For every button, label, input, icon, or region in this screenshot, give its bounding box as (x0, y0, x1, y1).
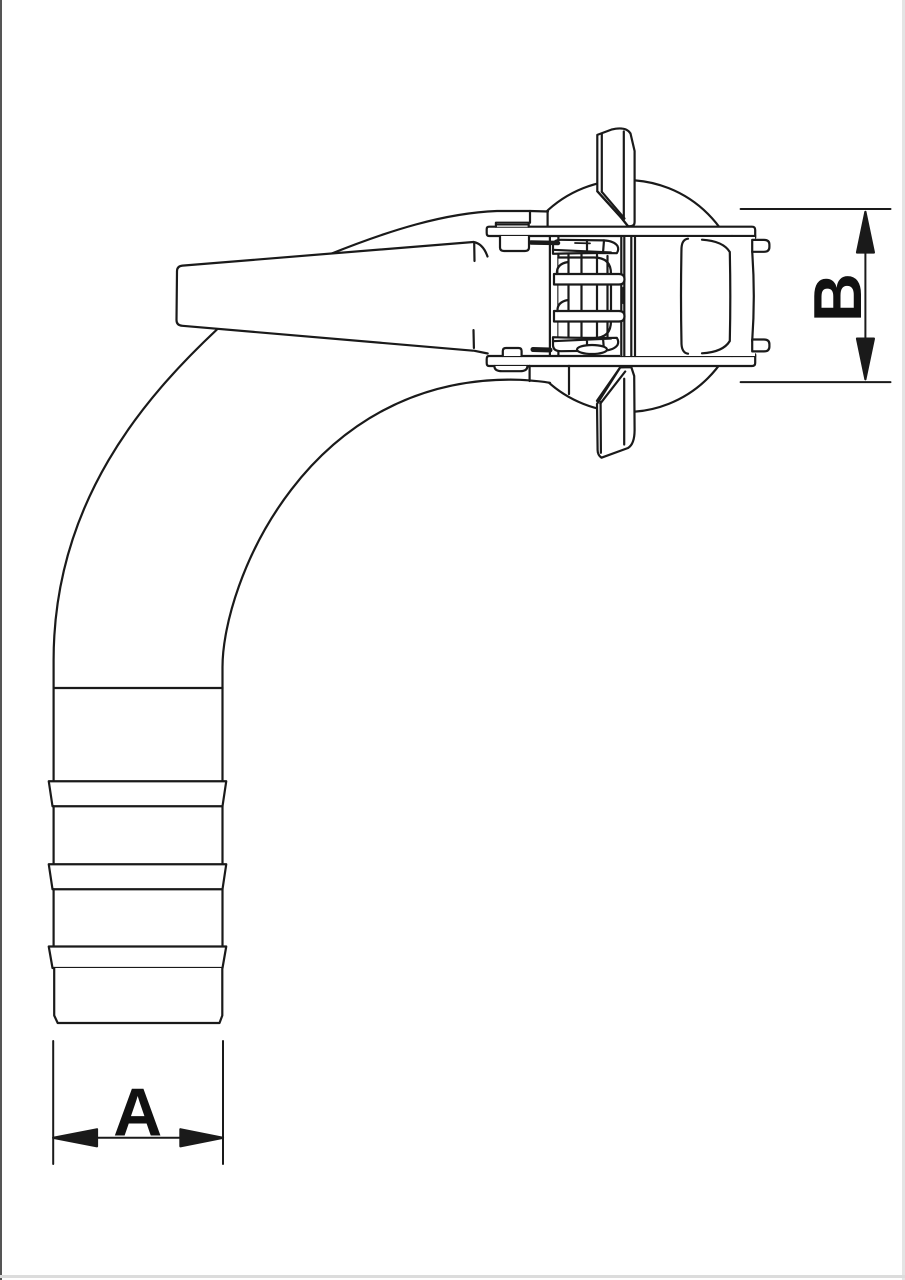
svg-text:A: A (113, 1075, 162, 1151)
svg-text:B: B (800, 273, 876, 322)
